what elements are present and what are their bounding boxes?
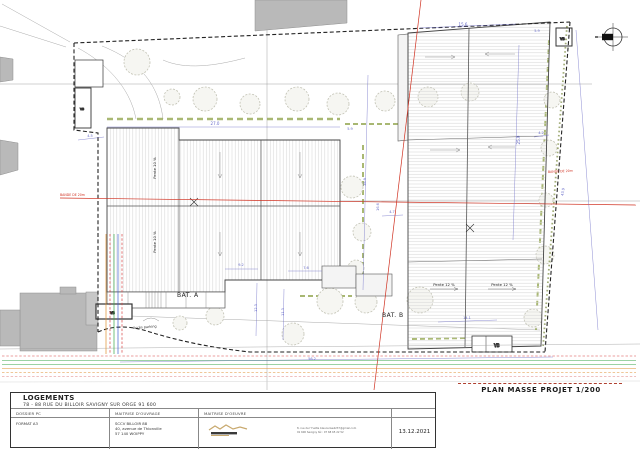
pente-b-label: Pente 12 %	[433, 282, 455, 287]
plan-caption: PLAN MASSE PROJET 1/200	[455, 386, 627, 394]
title-block-column-headers: DOSSIER PC MAITRISE D'OUVRAGE MAITRISE D…	[11, 409, 435, 418]
site-plan-canvas: VB VB VB VB BANDE DE 20m BANDE DE 20m	[0, 0, 640, 390]
title-block-header-row: LOGEMENTS 78 - 88 RUE DU BILLOIR SAVIGNY…	[11, 393, 435, 409]
header-maitrise-ouvrage: MAITRISE D'OUVRAGE	[109, 409, 198, 417]
dim: 12.3	[254, 304, 258, 312]
vb-label: VB	[494, 343, 500, 348]
dim: 56.2	[308, 357, 316, 361]
dim: 14.1	[463, 316, 471, 320]
title-block-values: FORMAT A3 SCCV BILLOIR 88 40, avenue de …	[11, 418, 435, 449]
dim: 43.9	[561, 188, 566, 196]
dim: 4.7	[389, 210, 395, 214]
header-empty	[391, 409, 437, 417]
pente-b-label: Pente 12 %	[491, 282, 513, 287]
dim: 16.6	[376, 203, 380, 211]
owner-cell: SCCV BILLOIR 88 40, avenue de Thionville…	[109, 418, 198, 449]
architect-cell: 8, rue de l'Yvette bleucerise4237@gmail.…	[198, 418, 391, 449]
bat-a-label: BAT. A	[177, 292, 199, 299]
dim: 11.3	[281, 308, 285, 316]
project-address: 78 - 88 RUE DU BILLOIR SAVIGNY SUR ORGE …	[23, 403, 156, 408]
dim: 25.9	[516, 135, 521, 144]
header-maitrise-oeuvre: MAITRISE D'OEUVRE	[198, 409, 391, 417]
bat-b-label: BAT. B	[382, 312, 404, 319]
dim: 38.9	[363, 178, 367, 186]
band-left-label: BANDE DE 20m	[60, 193, 85, 197]
vb-label: VB	[110, 311, 115, 315]
acces-parking-label: Accès parking	[133, 324, 157, 330]
date-cell: 13.12.2021	[391, 418, 437, 449]
format-label: FORMAT A3	[11, 418, 114, 452]
dim: 4.5	[87, 134, 93, 138]
dim: 5.9	[534, 29, 540, 33]
pente-a-label: Pente 10 %	[152, 157, 157, 179]
north-arrow-icon	[595, 23, 628, 51]
title-block: LOGEMENTS 78 - 88 RUE DU BILLOIR SAVIGNY…	[10, 392, 436, 448]
project-title: LOGEMENTS	[23, 394, 75, 402]
band-right-label: BANDE DE 20m	[548, 169, 573, 174]
pente-a-label: Pente 10 %	[152, 231, 157, 253]
dim: 7.6	[303, 266, 309, 270]
architect-contact: 8, rue de l'Yvette bleucerise4237@gmail.…	[297, 427, 356, 434]
vb-label: VB	[560, 37, 565, 41]
building-b	[398, 22, 550, 349]
building-a	[107, 128, 392, 308]
architect-logo	[207, 423, 251, 438]
sheet: VB VB VB VB BANDE DE 20m BANDE DE 20m	[0, 0, 640, 452]
dim: 4.2	[538, 131, 544, 135]
caption-underline	[458, 383, 622, 384]
architect-contact-line2: 91 600 Savigny tél : 07 68 65 22 52	[297, 431, 356, 435]
owner-address-2: 57 140 WOIPPY	[115, 431, 198, 436]
dim: 9.2	[238, 263, 244, 267]
dim: 27.0	[211, 121, 220, 126]
dim: 5.9	[347, 127, 353, 131]
dim: 15.6	[459, 22, 468, 27]
vb-label: VB	[80, 107, 84, 111]
